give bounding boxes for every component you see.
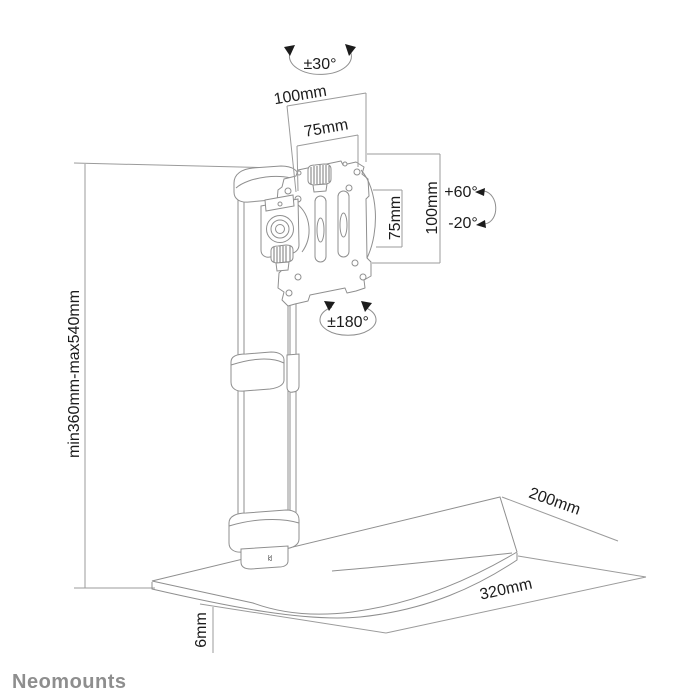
- tilt-down-label: -20°: [448, 215, 478, 232]
- rotation-annotation: ±180°: [320, 301, 376, 335]
- technical-drawing-page: min360mm-max540mm 200mm 320mm 6mm: [0, 0, 700, 700]
- base-width-label: 320mm: [478, 576, 534, 604]
- adjustment-rod: [287, 301, 299, 516]
- vesa-height-outer-label: 100mm: [424, 181, 441, 234]
- tilt-annotation: +60° -20°: [444, 184, 496, 232]
- height-adjust-collar: [231, 352, 284, 391]
- dim-base-thickness: 6mm: [193, 607, 213, 653]
- vesa-width-inner-label: 75mm: [303, 116, 350, 140]
- tilt-pivot-icon: [267, 216, 294, 243]
- swivel-annotation: ±30°: [284, 44, 356, 74]
- height-range-label: min360mm-max540mm: [66, 290, 83, 458]
- tilt-up-label: +60°: [444, 184, 478, 201]
- vesa-width-outer-label: 100mm: [273, 83, 328, 109]
- rotation-label: ±180°: [327, 314, 369, 331]
- brand-logo: Neomounts: [12, 671, 127, 693]
- swivel-top-label: ±30°: [304, 56, 337, 73]
- base-thickness-label: 6mm: [193, 612, 210, 648]
- vesa-height-inner-label: 75mm: [387, 196, 404, 240]
- collar-marking-label: 32: [266, 555, 272, 561]
- base-depth-label: 200mm: [527, 485, 583, 519]
- dim-base-depth: 200mm: [502, 485, 618, 541]
- base-plate: [152, 497, 517, 618]
- tilt-arc-icon: [484, 191, 496, 224]
- mount-drawing: min360mm-max540mm 200mm 320mm 6mm: [0, 0, 700, 700]
- dim-vesa-height-inner: 75mm: [373, 190, 404, 247]
